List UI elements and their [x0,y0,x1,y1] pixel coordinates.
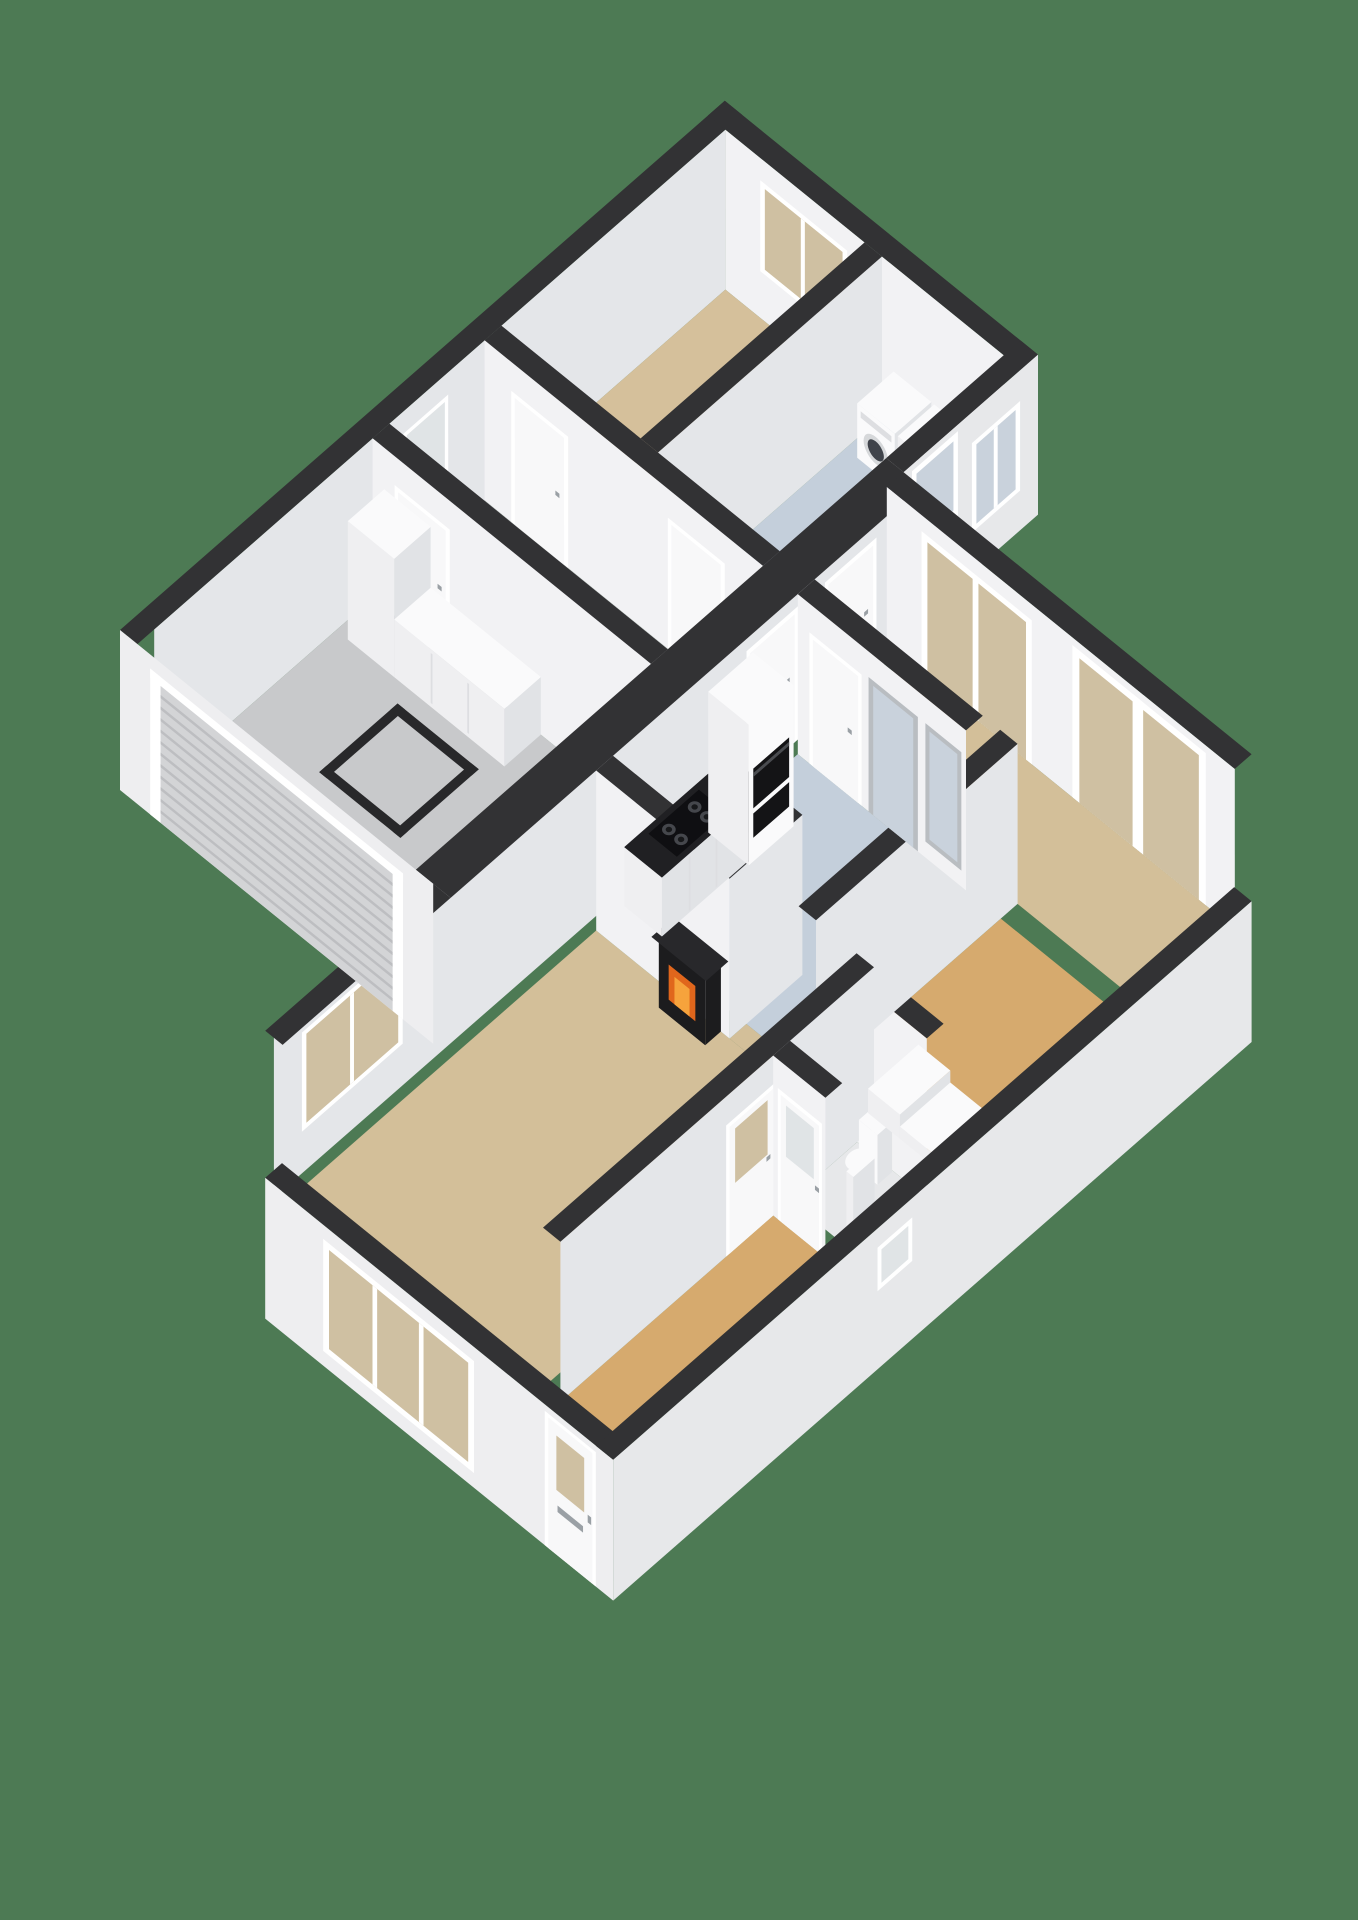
roller-door-post [150,669,160,823]
cabinet-seam [689,856,691,911]
glass-side-pane [929,732,957,863]
window-mullion [801,218,805,302]
cupboard-seam [467,683,469,734]
window-mullion [994,426,998,509]
cabinet-seam [716,832,718,887]
glass-door-post [1133,694,1143,855]
window-mullion [373,1285,378,1388]
window-mullion [419,1323,424,1426]
cupboard-seam [431,653,433,704]
window-mullion [350,992,354,1084]
oven-column [708,653,793,866]
floorplan-stage [0,0,1358,1920]
roller-door-post [393,865,403,1019]
floorplan-3d-render [0,0,1358,1920]
